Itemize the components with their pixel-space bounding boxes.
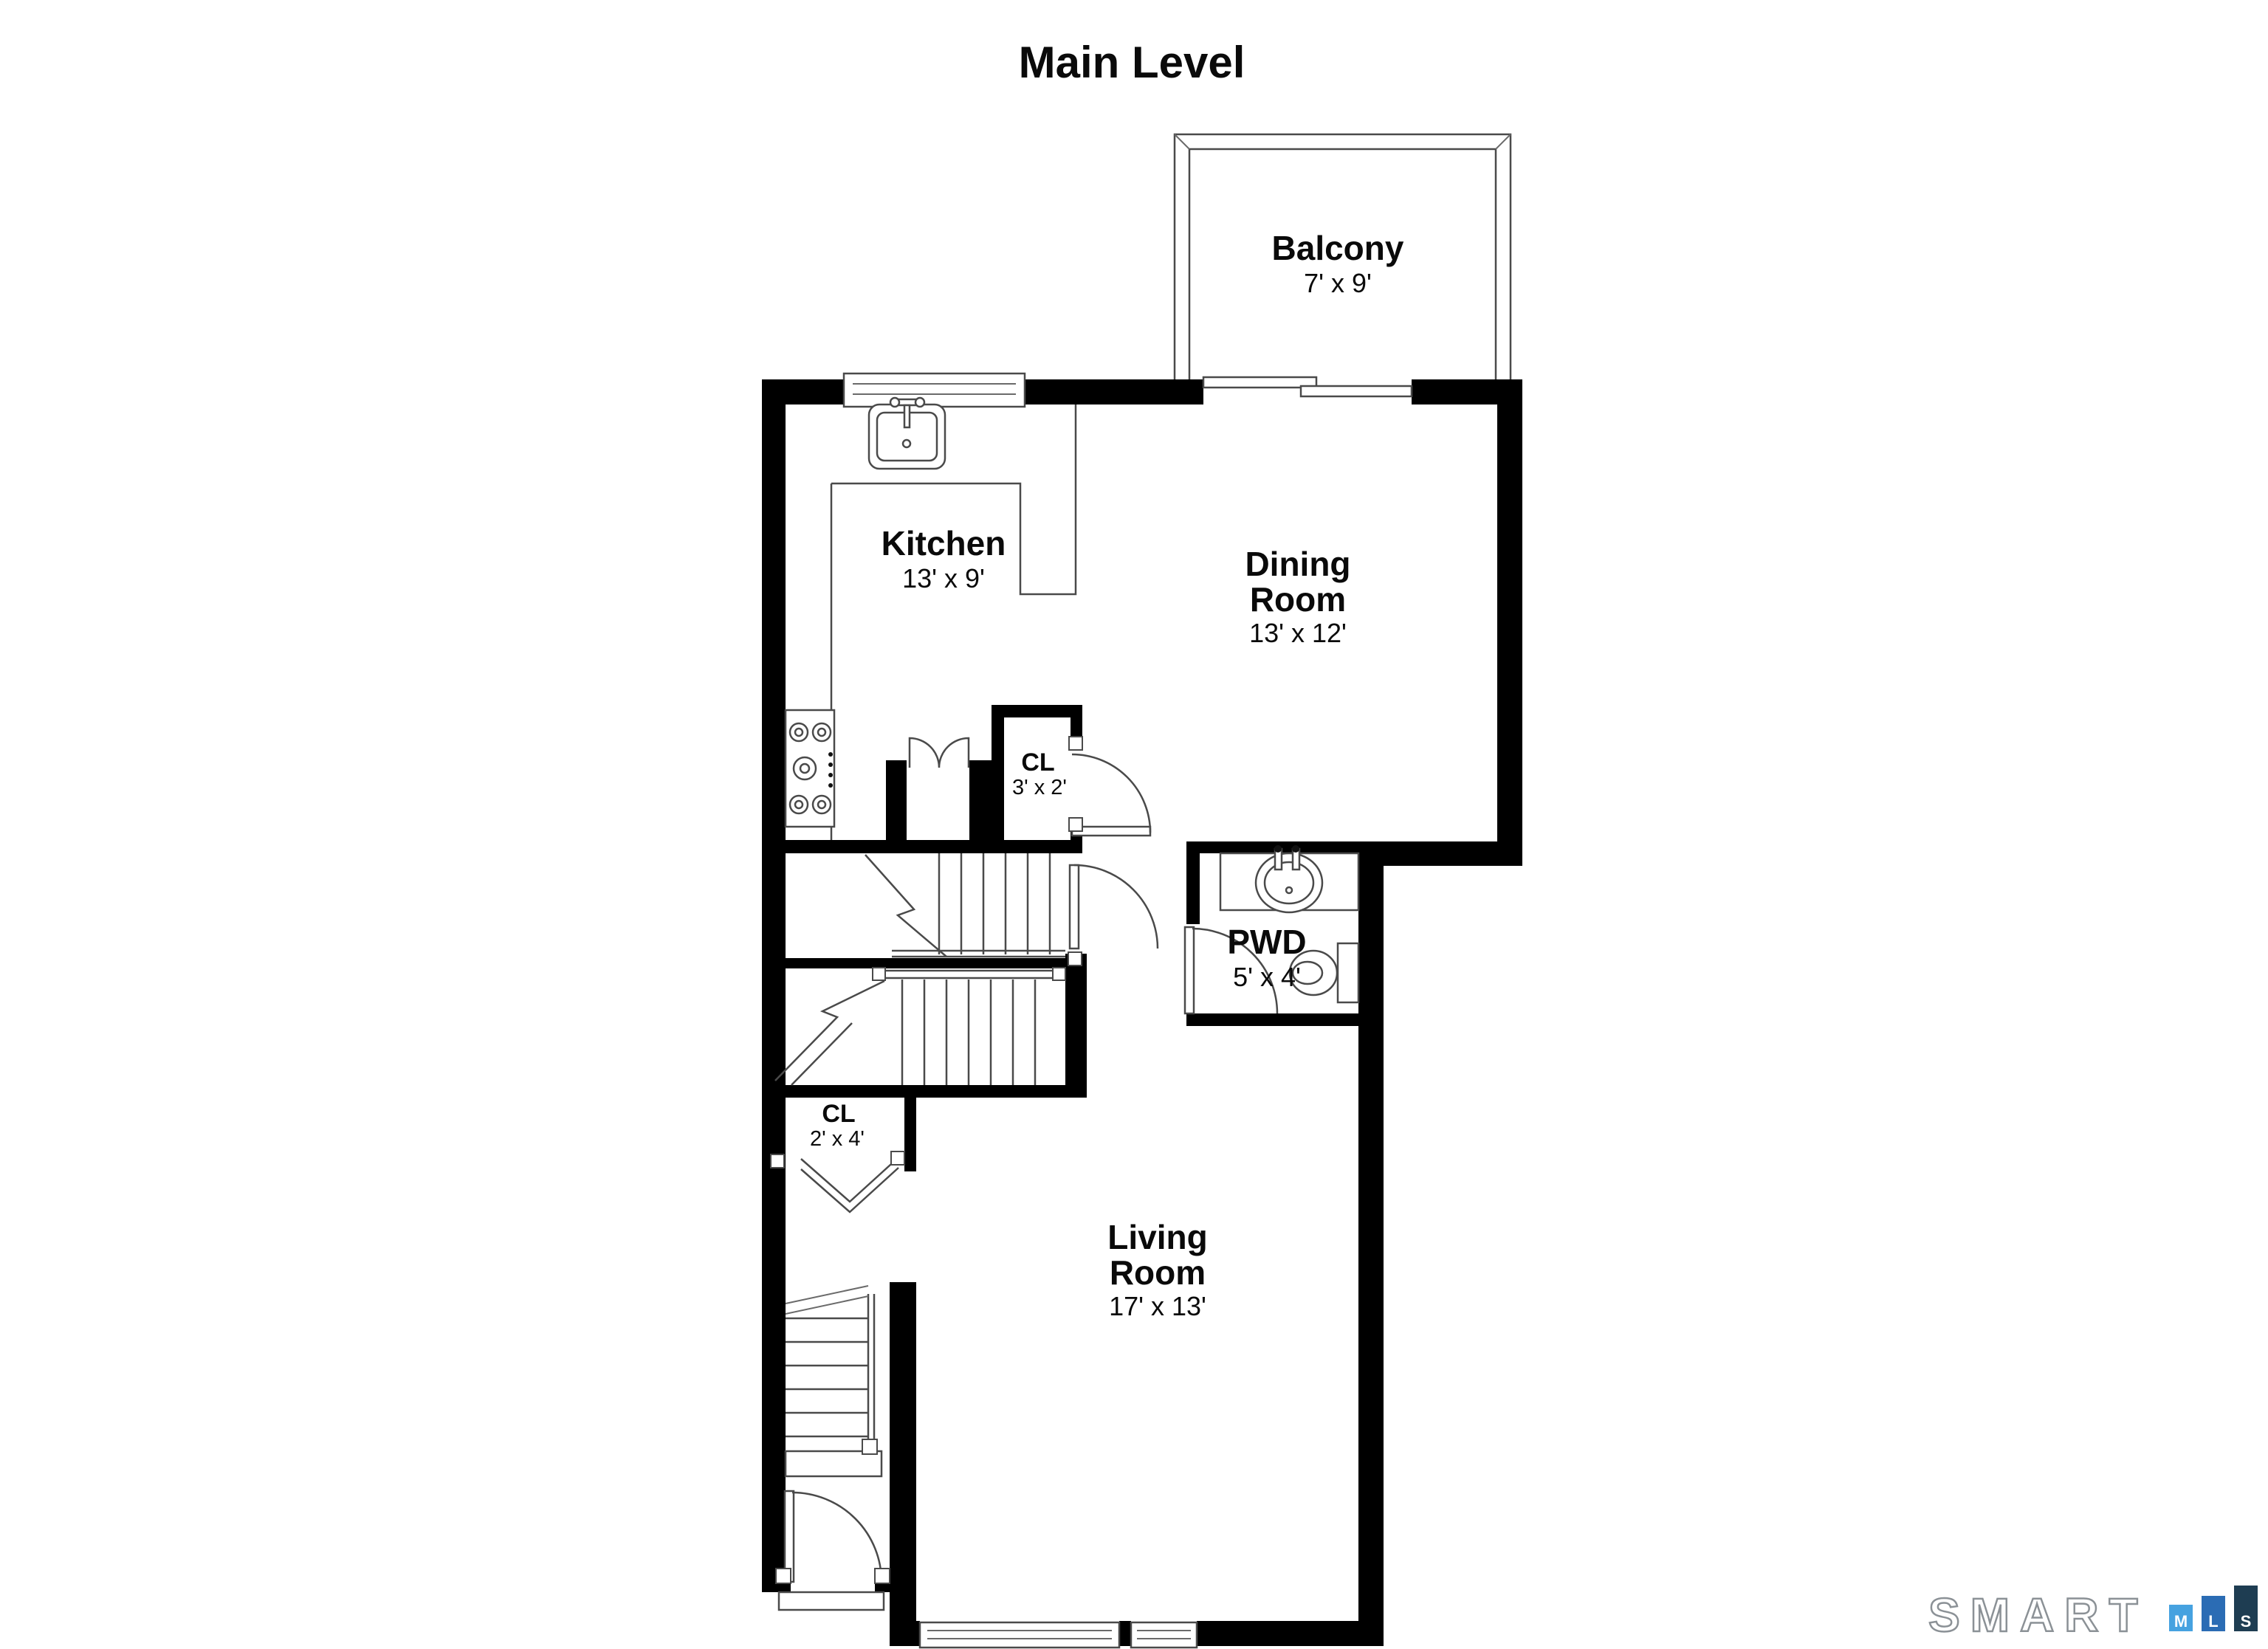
stairs-lower-treads [902, 980, 1035, 1085]
stairs-handrail [879, 971, 1056, 978]
toilet-tank [1338, 943, 1358, 1002]
jamb [1069, 737, 1082, 750]
stairs-basement-stringer [868, 1294, 874, 1451]
logo-bar-l-letter: L [2208, 1612, 2218, 1631]
wall-entrycloset-right [904, 1098, 916, 1171]
bifold-closet-doors [910, 738, 969, 768]
stairs-handrail-newel-left [873, 968, 885, 980]
room-label-kitchen: Kitchen [882, 524, 1006, 562]
entry-stoop [779, 1592, 884, 1610]
wall-left-exterior [762, 379, 786, 1591]
wall-right-connector [1384, 841, 1522, 866]
wall-stair-divider [762, 958, 1065, 968]
wall-top-middle [1025, 379, 1203, 404]
entry-door-swing [792, 1493, 882, 1582]
stove-knob-dot [828, 752, 833, 757]
room-label-entry-closet: CL [822, 1100, 855, 1128]
room-dims-balcony: 7' x 9' [1304, 268, 1372, 298]
stairs-lower-flight [775, 968, 1065, 1085]
smartmls-logo-wordmark: SMART [1928, 1588, 2148, 1642]
hall-door-swing [1074, 865, 1158, 949]
room-label-living-line1: Living [1107, 1218, 1207, 1256]
entry-closet-doors [801, 1157, 898, 1212]
kitchen-faucet-knob-left [890, 398, 899, 407]
wall-right-dining [1497, 379, 1522, 841]
pwd-sink-basin [1265, 862, 1313, 903]
wall-pwd-left [1186, 841, 1200, 924]
stairs-lower-break-line [775, 981, 884, 1085]
stove-knob-dot [828, 773, 833, 777]
floor-plan-svg: Main Level [0, 0, 2268, 1649]
room-dims-pwd: 5' x 4' [1233, 962, 1301, 992]
wall-stairhall-top [762, 840, 1082, 853]
hall-door-leaf [1070, 865, 1079, 949]
wall-living-bottom-pier2 [1119, 1621, 1131, 1646]
stairs-basement-break-line [786, 1286, 868, 1314]
smartmls-logo: SMART M L S [1928, 1586, 2258, 1642]
jamb [1069, 818, 1082, 831]
wall-living-bottom-solid [1197, 1621, 1358, 1646]
stove-knob-dot [828, 783, 833, 788]
jamb [1068, 952, 1082, 965]
wall-pwd-top [1186, 841, 1358, 853]
room-dims-entry-closet: 2' x 4' [810, 1127, 865, 1151]
room-dims-hall-closet: 3' x 2' [1012, 776, 1067, 799]
room-label-pwd: PWD [1227, 923, 1306, 961]
jamb [776, 1569, 791, 1583]
logo-bar-m-letter: M [2174, 1612, 2188, 1631]
hall-closet-door-leaf [1072, 827, 1150, 836]
logo-bar-s-letter: S [2241, 1612, 2252, 1631]
pwd-door-leaf [1185, 927, 1194, 1013]
wall-stairhall-bottom [762, 1085, 1087, 1098]
stairs-basement-treads [786, 1318, 868, 1436]
walls [762, 379, 1522, 1646]
stairs-upper-break-line [865, 855, 946, 957]
wall-stair-right [1065, 954, 1087, 1098]
wall-bifoldcloset-right [969, 760, 992, 840]
room-label-hall-closet: CL [1021, 748, 1054, 777]
wall-bifoldcloset-left [886, 760, 907, 840]
room-label-living-line2: Room [1110, 1253, 1206, 1292]
room-label-dining-line1: Dining [1245, 545, 1350, 583]
stairs-upper-stringer [892, 951, 1065, 957]
wall-pwd-bottom [1186, 1013, 1358, 1026]
balcony-rail-miters [1175, 134, 1511, 149]
room-label-dining-line2: Room [1250, 580, 1346, 619]
stove-knob-dot [828, 762, 833, 767]
living-room-window-2 [1131, 1622, 1197, 1648]
kitchen-window [844, 373, 1025, 407]
wall-hallcloset-top [992, 705, 1082, 717]
balcony-slider-panel-2 [1301, 386, 1412, 396]
floor-plan-page: Main Level [0, 0, 2268, 1649]
stairs-basement-landing [786, 1451, 882, 1476]
hall-closet-door-swing [1072, 754, 1150, 833]
living-room-window-1 [920, 1622, 1119, 1648]
stairs-basement-flight [786, 1286, 882, 1476]
jamb [771, 1154, 784, 1168]
room-dims-living: 17' x 13' [1109, 1291, 1206, 1321]
wall-hallcloset-right-upper [1071, 705, 1082, 738]
door-jambs [771, 737, 1082, 1583]
wall-entry-living-divider [890, 1282, 916, 1646]
balcony-slider-panel-1 [1203, 377, 1316, 388]
plan-title: Main Level [1019, 38, 1245, 87]
stairs-upper-flight [865, 853, 1065, 957]
kitchen-faucet-knob-right [915, 398, 924, 407]
pwd-faucet-dot [1274, 845, 1282, 853]
room-dims-kitchen: 13' x 9' [902, 563, 985, 593]
pwd-faucet-dot [1292, 845, 1299, 853]
room-label-balcony: Balcony [1272, 229, 1404, 267]
stairs-upper-treads [939, 853, 1050, 954]
room-dims-dining: 13' x 12' [1249, 618, 1347, 648]
kitchen-faucet-spout [904, 405, 910, 427]
stairs-basement-newel [862, 1439, 877, 1454]
stairs-handrail-newel-right [1053, 968, 1065, 980]
jamb [891, 1151, 904, 1165]
wall-right-living [1358, 841, 1384, 1646]
jamb [875, 1569, 890, 1583]
wall-hallcloset-left [992, 705, 1004, 840]
